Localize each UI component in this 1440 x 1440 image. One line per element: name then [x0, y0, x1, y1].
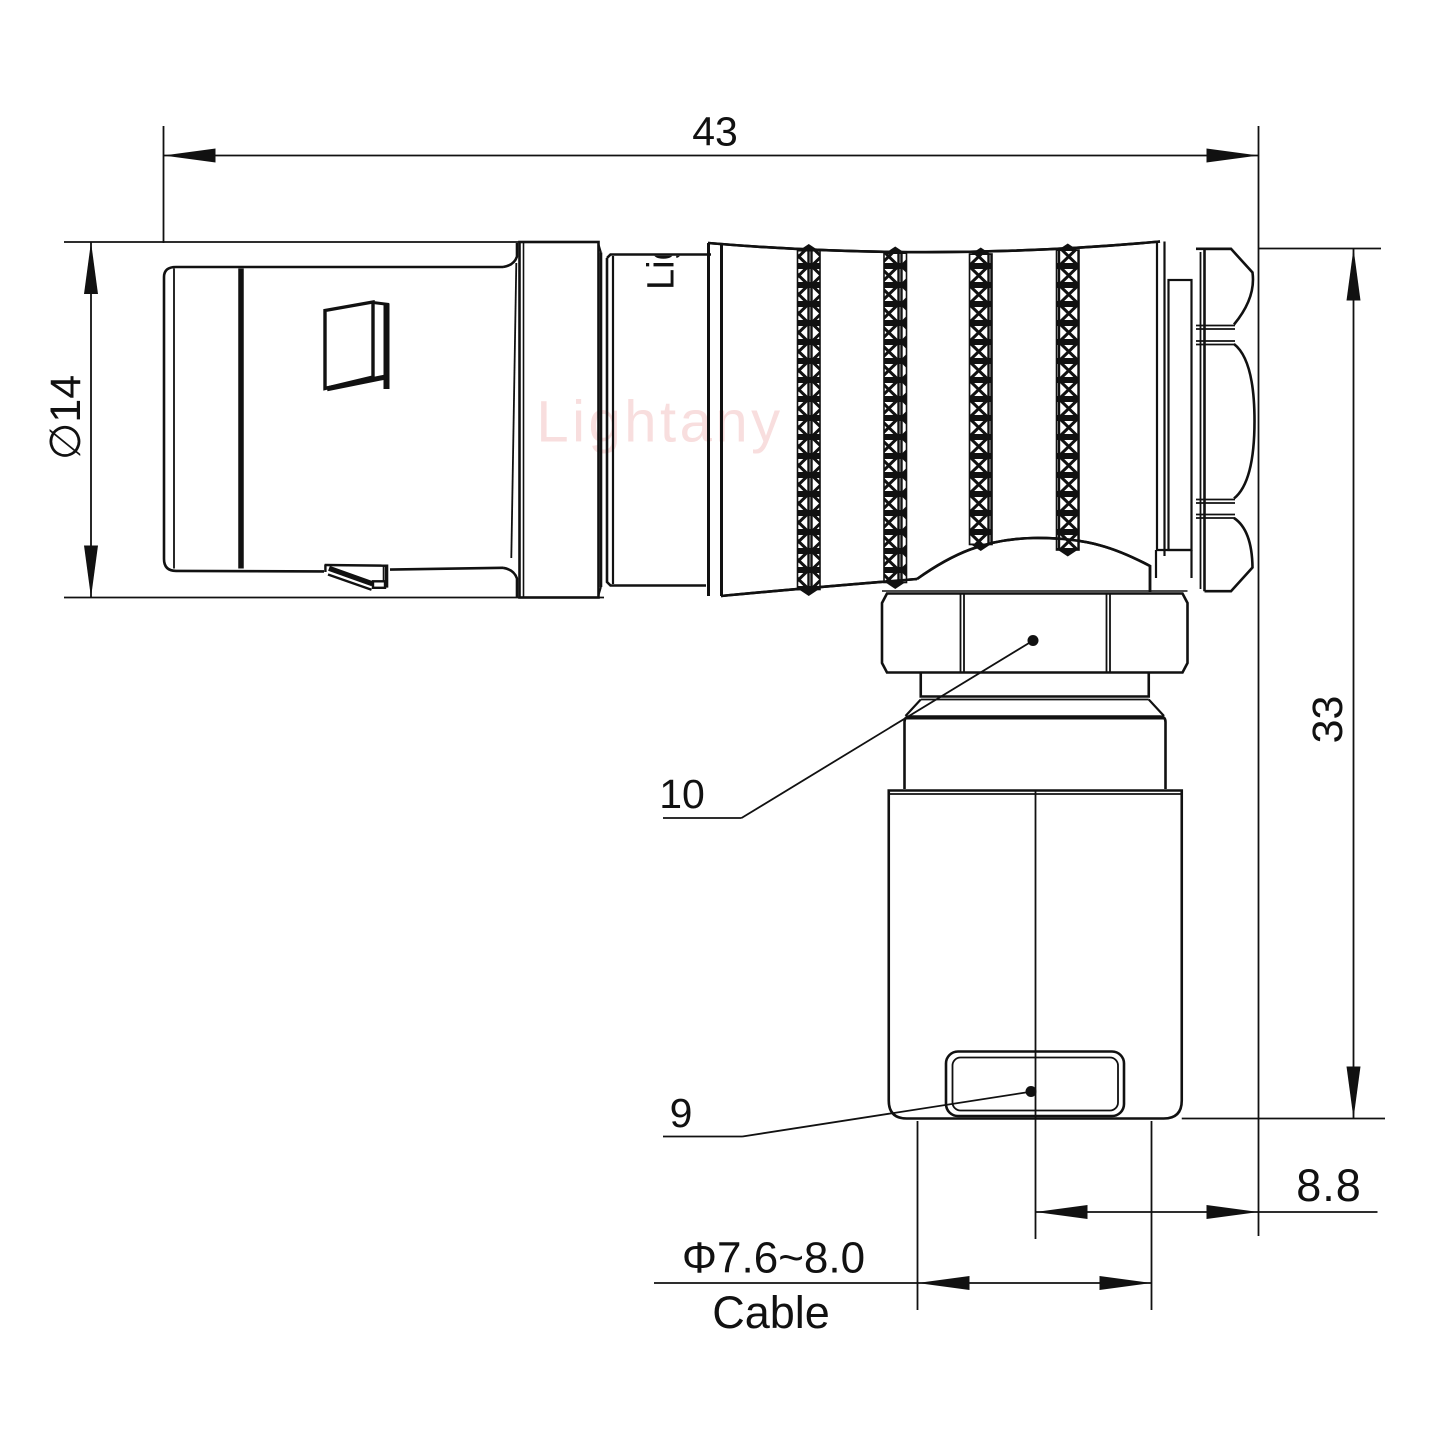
svg-text:9: 9 [670, 1090, 693, 1136]
svg-text:Lightany: Lightany [641, 146, 683, 290]
svg-text:∅14: ∅14 [42, 375, 90, 460]
svg-text:Cable: Cable [712, 1287, 830, 1338]
svg-text:8.8: 8.8 [1296, 1160, 1362, 1211]
svg-text:Φ7.6~8.0: Φ7.6~8.0 [682, 1234, 865, 1283]
svg-text:Lightany: Lightany [536, 390, 783, 455]
svg-text:33: 33 [1304, 696, 1352, 744]
svg-text:43: 43 [692, 109, 738, 155]
svg-text:10: 10 [659, 771, 705, 817]
